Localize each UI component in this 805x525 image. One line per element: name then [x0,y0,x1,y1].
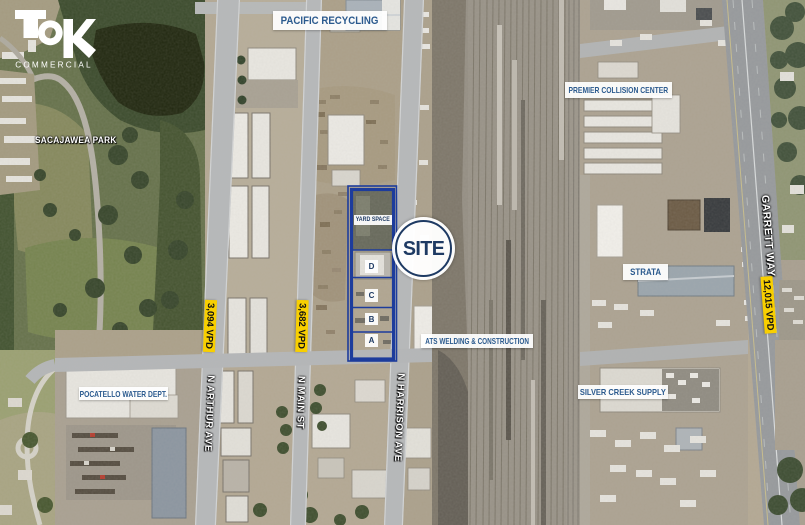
svg-text:COMMERCIAL: COMMERCIAL [15,61,93,70]
